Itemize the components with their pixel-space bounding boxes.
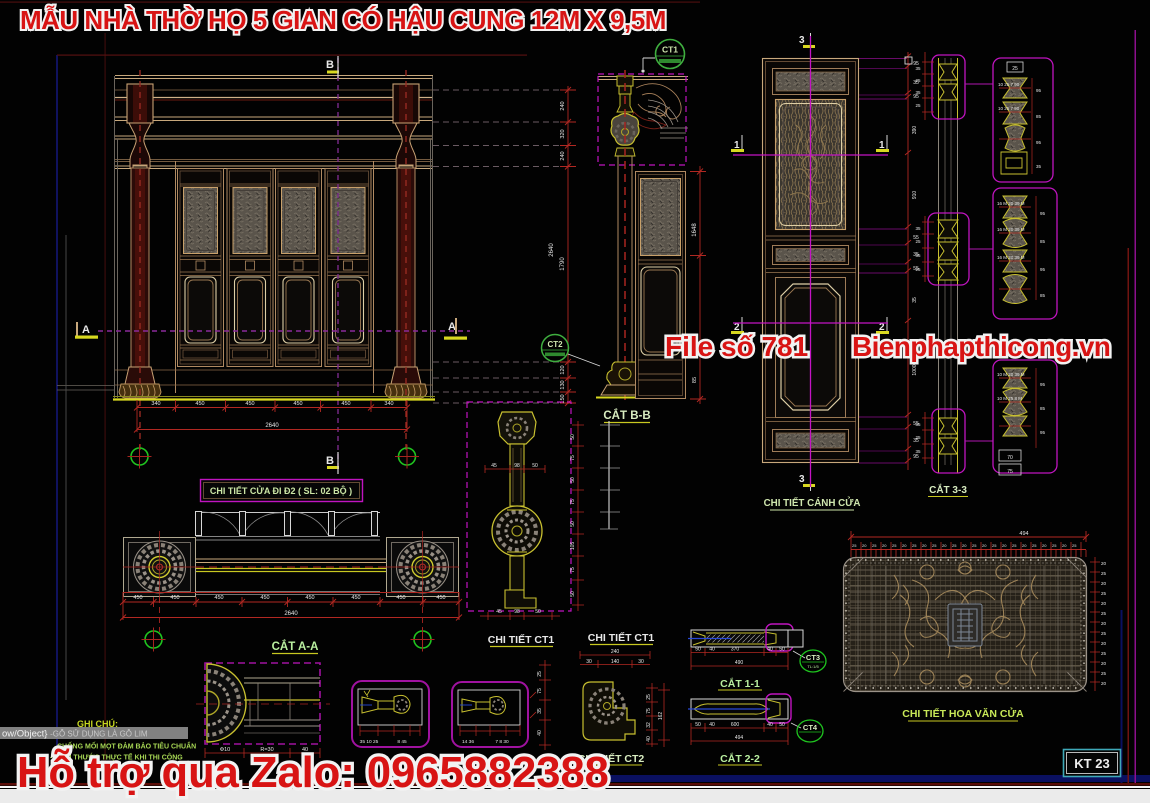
svg-text:32: 32: [646, 722, 652, 728]
svg-text:20: 20: [962, 543, 967, 548]
svg-text:CHI TIẾT CÁNH CỬA: CHI TIẾT CÁNH CỬA: [764, 497, 861, 509]
svg-text:25: 25: [1012, 66, 1018, 72]
svg-text:35: 35: [537, 708, 543, 714]
svg-text:35: 35: [915, 226, 921, 231]
svg-text:35: 35: [912, 297, 918, 303]
svg-text:35: 35: [915, 253, 921, 258]
svg-text:25: 25: [892, 543, 897, 548]
svg-text:3: 3: [799, 474, 805, 485]
svg-text:85: 85: [692, 377, 698, 383]
svg-text:35: 35: [915, 422, 921, 427]
svg-text:162: 162: [658, 712, 664, 721]
svg-text:20: 20: [1101, 641, 1107, 646]
svg-text:450: 450: [133, 595, 142, 601]
svg-text:16 M 20 39 M: 16 M 20 39 M: [997, 227, 1025, 232]
svg-text:240: 240: [560, 151, 566, 160]
svg-text:2640: 2640: [549, 243, 555, 257]
svg-text:25: 25: [912, 543, 917, 548]
svg-text:20: 20: [1101, 621, 1107, 626]
svg-text:120: 120: [560, 365, 566, 374]
svg-text:85: 85: [1040, 239, 1046, 244]
svg-text:50: 50: [570, 477, 576, 483]
svg-text:70: 70: [1007, 455, 1013, 461]
svg-text:20: 20: [862, 543, 867, 548]
svg-text:450: 450: [245, 401, 254, 407]
svg-text:40: 40: [767, 647, 773, 653]
svg-text:20: 20: [1101, 681, 1107, 686]
svg-text:25: 25: [915, 103, 921, 108]
svg-text:25: 25: [1012, 543, 1017, 548]
svg-text:75: 75: [646, 708, 652, 714]
svg-text:2640: 2640: [284, 611, 298, 617]
svg-text:370: 370: [731, 647, 740, 653]
svg-text:20: 20: [982, 543, 987, 548]
svg-text:20: 20: [1101, 661, 1107, 666]
svg-text:CẮT 1-1: CẮT 1-1: [720, 677, 760, 690]
svg-text:75: 75: [1007, 469, 1013, 475]
svg-text:140: 140: [611, 659, 620, 665]
svg-text:340: 340: [384, 401, 393, 407]
svg-text:25: 25: [852, 543, 857, 548]
svg-text:8 45: 8 45: [397, 739, 407, 745]
svg-text:TL:1/5: TL:1/5: [807, 664, 819, 669]
svg-text:40: 40: [646, 736, 652, 742]
svg-text:75: 75: [537, 688, 543, 694]
svg-text:CT1: CT1: [662, 45, 678, 55]
svg-text:50: 50: [695, 722, 701, 728]
svg-text:CHI TIẾT CỬA ĐI Đ2 ( SL: 02 BỘ: CHI TIẾT CỬA ĐI Đ2 ( SL: 02 BỘ ): [210, 485, 352, 496]
svg-text:ow/Object} -GỖ SỬ DỤNG LÀ GỖ L: ow/Object} -GỖ SỬ DỤNG LÀ GỖ LIM: [2, 729, 148, 740]
svg-text:50: 50: [570, 434, 576, 440]
svg-text:98: 98: [514, 463, 520, 469]
svg-text:450: 450: [195, 401, 204, 407]
svg-text:20: 20: [902, 543, 907, 548]
svg-text:95: 95: [913, 454, 919, 460]
svg-text:450: 450: [436, 595, 445, 601]
svg-text:25: 25: [537, 671, 543, 677]
svg-text:40: 40: [709, 722, 715, 728]
svg-text:40: 40: [537, 730, 543, 736]
svg-text:20: 20: [1002, 543, 1007, 548]
svg-text:130: 130: [560, 380, 566, 389]
svg-text:40: 40: [767, 722, 773, 728]
svg-text:50: 50: [570, 591, 576, 597]
svg-text:25: 25: [915, 267, 921, 272]
svg-text:25: 25: [992, 543, 997, 548]
svg-text:95: 95: [1040, 211, 1046, 216]
svg-text:20: 20: [1101, 581, 1107, 586]
svg-text:35: 35: [915, 90, 921, 95]
svg-text:25: 25: [1072, 543, 1077, 548]
svg-text:85: 85: [1036, 114, 1042, 119]
svg-text:390: 390: [912, 126, 918, 135]
svg-text:3: 3: [799, 35, 805, 46]
svg-text:50: 50: [695, 647, 701, 653]
svg-text:1000: 1000: [912, 364, 918, 375]
svg-text:20: 20: [1101, 561, 1107, 566]
svg-text:A: A: [82, 324, 90, 336]
svg-text:25: 25: [1101, 591, 1107, 596]
svg-text:450: 450: [214, 595, 223, 601]
svg-text:16 M 20 39 M: 16 M 20 39 M: [997, 201, 1025, 206]
svg-text:CT2: CT2: [547, 340, 563, 349]
svg-text:50: 50: [535, 609, 541, 615]
svg-text:95: 95: [1036, 140, 1042, 145]
svg-text:CẮT A-A: CẮT A-A: [272, 640, 319, 653]
svg-text:20: 20: [882, 543, 887, 548]
svg-text:10 M 20 39 M: 10 M 20 39 M: [997, 372, 1025, 377]
svg-text:1790: 1790: [560, 257, 566, 271]
svg-text:25: 25: [1032, 543, 1037, 548]
svg-text:14 36: 14 36: [462, 739, 474, 745]
svg-text:25: 25: [1101, 651, 1107, 656]
svg-text:2640: 2640: [265, 423, 279, 429]
svg-text:50: 50: [532, 463, 538, 469]
svg-text:98: 98: [514, 609, 520, 615]
svg-text:25: 25: [1101, 671, 1107, 676]
svg-text:35: 35: [915, 66, 921, 71]
svg-text:KT 23: KT 23: [1074, 756, 1109, 771]
svg-text:910: 910: [912, 191, 918, 200]
svg-text:7 8 30: 7 8 30: [495, 739, 509, 745]
svg-text:30: 30: [638, 659, 644, 665]
svg-text:25: 25: [1101, 611, 1107, 616]
svg-text:240: 240: [611, 649, 620, 655]
svg-text:25: 25: [1101, 571, 1107, 576]
svg-text:35 10 25: 35 10 25: [360, 739, 379, 745]
svg-text:25: 25: [872, 543, 877, 548]
svg-text:25: 25: [915, 78, 921, 83]
svg-text:CT4: CT4: [803, 723, 818, 732]
svg-text:25: 25: [915, 239, 921, 244]
svg-text:B: B: [326, 455, 334, 467]
svg-text:600: 600: [731, 722, 740, 728]
svg-text:30: 30: [586, 659, 592, 665]
svg-text:1648: 1648: [692, 223, 698, 237]
svg-text:25: 25: [932, 543, 937, 548]
svg-text:75: 75: [570, 567, 576, 573]
svg-text:25: 25: [915, 435, 921, 440]
svg-text:450: 450: [305, 595, 314, 601]
svg-text:50: 50: [570, 521, 576, 527]
svg-text:75: 75: [570, 499, 576, 505]
svg-text:20: 20: [1022, 543, 1027, 548]
svg-text:85: 85: [1040, 293, 1046, 298]
svg-text:25: 25: [1052, 543, 1057, 548]
svg-text:450: 450: [341, 401, 350, 407]
svg-text:95: 95: [1040, 267, 1046, 272]
svg-text:20: 20: [942, 543, 947, 548]
svg-text:50: 50: [779, 722, 785, 728]
svg-text:25: 25: [972, 543, 977, 548]
svg-text:40: 40: [709, 647, 715, 653]
svg-text:CHI TIẾT CT1: CHI TIẾT CT1: [588, 631, 655, 644]
svg-text:10 25 7 90: 10 25 7 90: [998, 106, 1020, 111]
svg-text:50: 50: [779, 647, 785, 653]
svg-text:CHI TIẾT CT1: CHI TIẾT CT1: [488, 633, 555, 646]
svg-text:450: 450: [351, 595, 360, 601]
svg-text:95: 95: [1040, 430, 1046, 435]
svg-text:35: 35: [915, 449, 921, 454]
svg-text:450: 450: [260, 595, 269, 601]
svg-text:CẮT 3-3: CẮT 3-3: [929, 483, 967, 496]
svg-text:25: 25: [1101, 631, 1107, 636]
svg-text:CT3: CT3: [806, 653, 820, 662]
svg-text:16 M 20 39 M: 16 M 20 39 M: [997, 255, 1025, 260]
svg-text:CẮT B-B: CẮT B-B: [603, 409, 650, 422]
svg-text:B: B: [326, 59, 334, 71]
svg-text:10 M 25 8 M: 10 M 25 8 M: [997, 396, 1022, 401]
svg-text:240: 240: [560, 101, 566, 110]
svg-text:494: 494: [1019, 531, 1028, 537]
svg-text:450: 450: [293, 401, 302, 407]
svg-text:20: 20: [1101, 601, 1107, 606]
svg-text:340: 340: [151, 401, 160, 407]
svg-text:450: 450: [170, 595, 179, 601]
svg-text:45: 45: [491, 463, 497, 469]
svg-text:490: 490: [735, 660, 744, 666]
svg-text:494: 494: [735, 735, 744, 741]
svg-text:CHI TIẾT HOA VĂN CỬA: CHI TIẾT HOA VĂN CỬA: [902, 707, 1024, 720]
svg-text:95: 95: [1036, 88, 1042, 93]
svg-text:CẮT 2-2: CẮT 2-2: [720, 752, 760, 765]
svg-text:320: 320: [560, 129, 566, 138]
svg-text:85: 85: [1040, 406, 1046, 411]
svg-text:10 25 7 90: 10 25 7 90: [998, 82, 1020, 87]
svg-text:20: 20: [1062, 543, 1067, 548]
svg-text:A: A: [448, 321, 456, 333]
svg-text:45: 45: [496, 609, 502, 615]
svg-text:95: 95: [1040, 382, 1046, 387]
svg-text:75: 75: [570, 455, 576, 461]
svg-text:35: 35: [1036, 164, 1042, 169]
svg-text:20: 20: [1042, 543, 1047, 548]
svg-text:20: 20: [922, 543, 927, 548]
svg-text:450: 450: [396, 595, 405, 601]
svg-text:25: 25: [952, 543, 957, 548]
svg-text:25: 25: [646, 694, 652, 700]
svg-text:105: 105: [570, 542, 576, 551]
